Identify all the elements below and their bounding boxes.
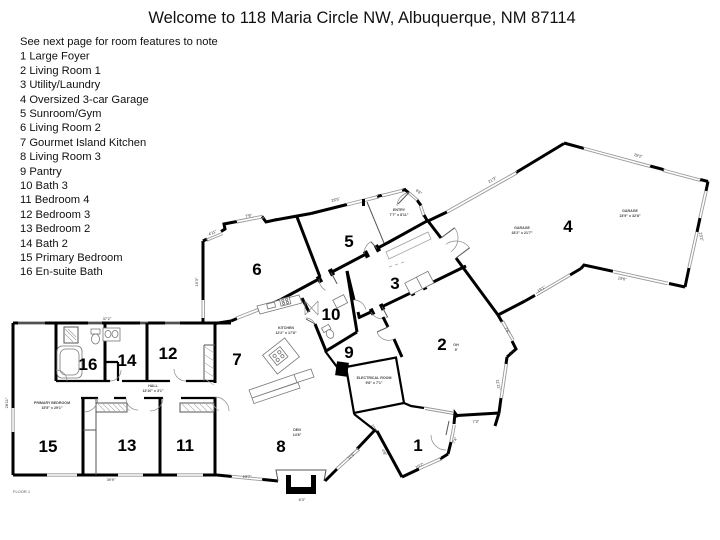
svg-text:14 Bath 2: 14 Bath 2 xyxy=(20,238,68,250)
svg-text:2 Living Room 1: 2 Living Room 1 xyxy=(20,65,101,77)
svg-text:12'2" x 17'8": 12'2" x 17'8" xyxy=(275,331,296,335)
svg-text:See next page for room feature: See next page for room features to note xyxy=(20,36,218,48)
svg-text:5: 5 xyxy=(344,232,353,251)
svg-text:10 Bath 3: 10 Bath 3 xyxy=(20,180,68,192)
svg-text:29'2": 29'2" xyxy=(633,152,643,159)
svg-text:5 Sunroom/Gym: 5 Sunroom/Gym xyxy=(20,108,101,120)
svg-text:7: 7 xyxy=(232,350,241,369)
svg-text:6'3": 6'3" xyxy=(299,497,306,502)
svg-text:13: 13 xyxy=(118,436,137,455)
svg-text:14'8": 14'8" xyxy=(293,433,302,437)
svg-text:PRIMARY BEDROOM: PRIMARY BEDROOM xyxy=(34,401,70,405)
svg-text:GARAGE: GARAGE xyxy=(622,209,638,213)
svg-text:9 Pantry: 9 Pantry xyxy=(20,166,62,178)
svg-text:10: 10 xyxy=(322,305,341,324)
svg-text:FLOOR 1: FLOOR 1 xyxy=(13,489,31,494)
svg-text:7'7" x 8'11": 7'7" x 8'11" xyxy=(390,213,409,217)
svg-text:DEN: DEN xyxy=(293,428,301,432)
svg-text:12 Bedroom 3: 12 Bedroom 3 xyxy=(20,209,90,221)
svg-text:37'2": 37'2" xyxy=(103,316,112,321)
svg-text:9': 9' xyxy=(455,348,458,352)
svg-text:16'3": 16'3" xyxy=(194,277,199,286)
svg-text:HALL: HALL xyxy=(148,384,158,388)
svg-text:11: 11 xyxy=(176,436,194,455)
svg-text:12: 12 xyxy=(159,344,178,363)
svg-text:23'2": 23'2" xyxy=(698,232,705,242)
svg-text:11 Bedroom 4: 11 Bedroom 4 xyxy=(20,194,89,206)
svg-text:KITCHEN: KITCHEN xyxy=(278,326,294,330)
svg-text:16 En-suite Bath: 16 En-suite Bath xyxy=(20,266,103,278)
svg-text:ELECTRICAL ROOM: ELECTRICAL ROOM xyxy=(357,376,392,380)
svg-text:15: 15 xyxy=(39,437,58,456)
svg-text:19'6": 19'6" xyxy=(617,275,627,282)
svg-text:6'6": 6'6" xyxy=(415,188,424,196)
svg-text:6: 6 xyxy=(252,260,261,279)
svg-text:16: 16 xyxy=(79,355,98,374)
svg-text:14: 14 xyxy=(118,351,137,370)
svg-text:26'5": 26'5" xyxy=(331,196,341,203)
svg-text:19'1": 19'1" xyxy=(536,284,547,293)
svg-text:39'9": 39'9" xyxy=(107,477,116,482)
svg-text:23'9" x 32'8": 23'9" x 32'8" xyxy=(619,214,640,218)
svg-text:28'11": 28'11" xyxy=(4,397,9,408)
svg-text:15 Primary Bedroom: 15 Primary Bedroom xyxy=(20,252,123,264)
svg-text:GARAGE: GARAGE xyxy=(514,226,530,230)
svg-text:13 Bedroom 2: 13 Bedroom 2 xyxy=(20,223,90,235)
svg-text:9: 9 xyxy=(344,343,353,362)
svg-text:33'2" x 21'7": 33'2" x 21'7" xyxy=(511,231,532,235)
svg-text:1: 1 xyxy=(413,436,422,455)
svg-text:11'11": 11'11" xyxy=(495,379,502,391)
svg-text:Welcome to 118 Maria Circle NW: Welcome to 118 Maria Circle NW, Albuquer… xyxy=(148,9,575,27)
svg-text:7'6": 7'6" xyxy=(504,326,512,335)
svg-text:OH: OH xyxy=(453,343,459,347)
svg-text:7 Gourmet Island Kitchen: 7 Gourmet Island Kitchen xyxy=(20,137,146,149)
svg-text:ENTRY: ENTRY xyxy=(393,208,406,212)
svg-text:4'11": 4'11" xyxy=(207,228,217,236)
svg-text:7'4": 7'4" xyxy=(451,436,459,445)
svg-text:8: 8 xyxy=(276,437,285,456)
svg-text:3 Utility/Laundry: 3 Utility/Laundry xyxy=(20,79,101,91)
svg-text:6 Living Room 2: 6 Living Room 2 xyxy=(20,122,101,134)
svg-text:9'8" x 7'1": 9'8" x 7'1" xyxy=(365,381,382,385)
svg-text:3: 3 xyxy=(390,274,399,293)
svg-text:13'7": 13'7" xyxy=(243,474,253,480)
svg-text:4 Oversized 3-car Garage: 4 Oversized 3-car Garage xyxy=(20,94,149,106)
svg-text:13'10" x 3'1": 13'10" x 3'1" xyxy=(142,389,163,393)
svg-text:4: 4 xyxy=(563,217,573,236)
svg-text:15'5" x 29'1": 15'5" x 29'1" xyxy=(41,406,62,410)
svg-text:1 Large Foyer: 1 Large Foyer xyxy=(20,51,90,63)
svg-text:8 Living Room 3: 8 Living Room 3 xyxy=(20,151,101,163)
svg-text:11'6": 11'6" xyxy=(346,451,356,461)
svg-text:2: 2 xyxy=(437,335,446,354)
svg-text:7'3": 7'3" xyxy=(472,419,480,425)
